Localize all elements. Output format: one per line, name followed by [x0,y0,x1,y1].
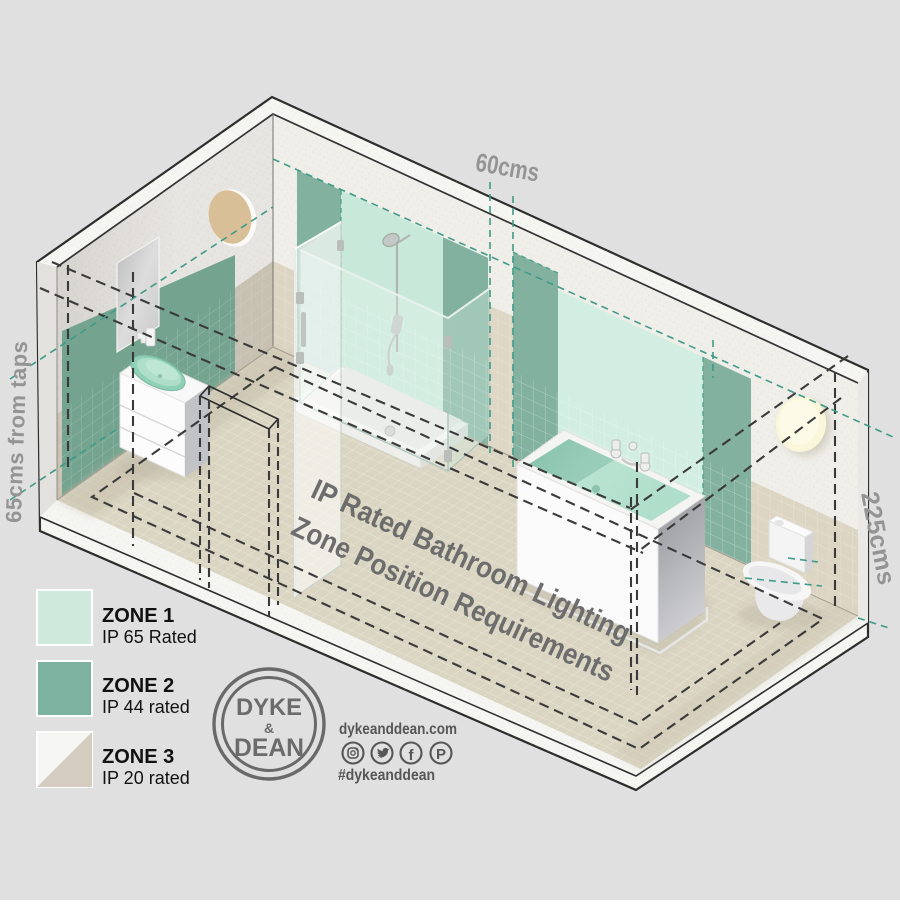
svg-text:IP 65 Rated: IP 65 Rated [102,627,197,647]
svg-text:P: P [436,746,446,763]
svg-text:IP 44 rated: IP 44 rated [102,697,190,717]
svg-text:dykeanddean.com: dykeanddean.com [339,721,457,738]
svg-text:DYKE: DYKE [236,694,302,721]
svg-text:ZONE 1: ZONE 1 [102,605,174,627]
svg-text:DEAN: DEAN [234,734,304,762]
svg-text:ZONE 2: ZONE 2 [102,675,174,697]
svg-text:#dykeanddean: #dykeanddean [338,767,435,784]
svg-text:IP 20 rated: IP 20 rated [102,768,190,788]
svg-text:ZONE 3: ZONE 3 [102,746,174,768]
